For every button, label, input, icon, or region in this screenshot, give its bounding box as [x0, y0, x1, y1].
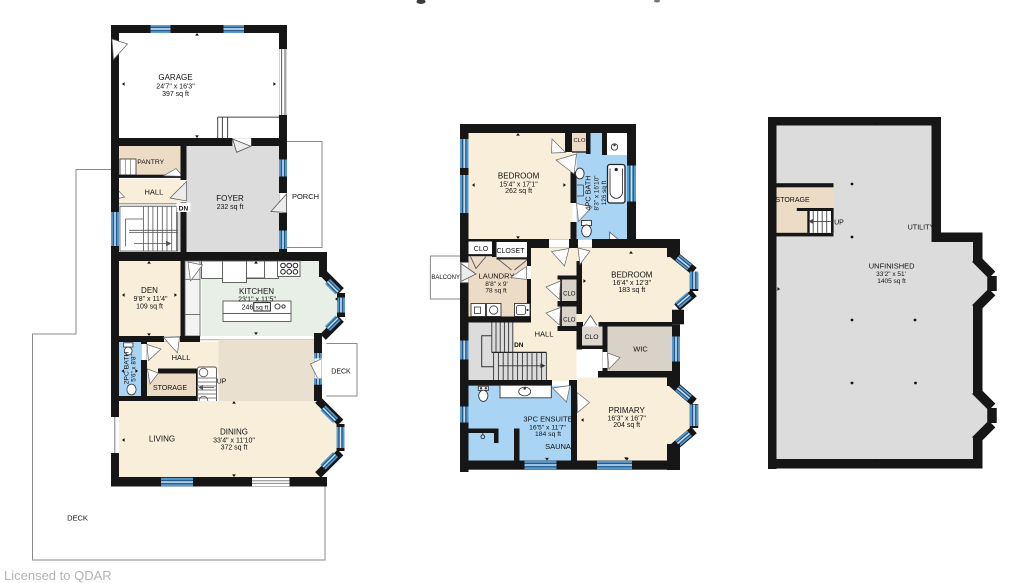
svg-text:DN: DN: [514, 342, 524, 349]
svg-text:LAUNDRY: LAUNDRY: [479, 271, 515, 280]
svg-text:CLOSET: CLOSET: [496, 248, 525, 255]
svg-text:DEN: DEN: [141, 286, 158, 295]
svg-text:UP: UP: [217, 379, 227, 386]
svg-text:GARAGE: GARAGE: [158, 73, 192, 82]
svg-text:262 sq ft: 262 sq ft: [505, 188, 532, 195]
svg-text:8'3" x 16'10": 8'3" x 16'10": [594, 175, 601, 210]
svg-text:CLO: CLO: [474, 246, 489, 253]
svg-text:DECK: DECK: [67, 514, 88, 523]
svg-text:BEDROOM: BEDROOM: [498, 171, 540, 180]
svg-text:CLO: CLO: [563, 291, 576, 297]
svg-text:PRIMARY: PRIMARY: [609, 406, 646, 415]
svg-text:BALCONY: BALCONY: [431, 275, 460, 281]
svg-text:16'4" x 12'3": 16'4" x 12'3": [613, 280, 652, 287]
svg-text:CLO: CLO: [563, 317, 576, 323]
svg-text:1405 sq ft: 1405 sq ft: [877, 278, 906, 285]
svg-text:BEDROOM: BEDROOM: [611, 271, 653, 280]
svg-text:sq ft: sq ft: [256, 304, 269, 311]
svg-text:246: 246: [242, 305, 254, 312]
svg-text:STORAGE: STORAGE: [776, 197, 810, 204]
svg-text:LIVING: LIVING: [149, 435, 175, 444]
svg-text:183 sq ft: 183 sq ft: [618, 287, 645, 294]
svg-text:SAUNA: SAUNA: [545, 442, 571, 451]
svg-text:UP: UP: [834, 220, 844, 227]
svg-text:KITCHEN: KITCHEN: [239, 287, 274, 296]
svg-text:UNFINISHED: UNFINISHED: [869, 261, 915, 270]
svg-text:78 sq ft: 78 sq ft: [485, 288, 507, 295]
svg-text:24'7" x 16'3": 24'7" x 16'3": [156, 84, 195, 91]
svg-text:109 sq ft: 109 sq ft: [136, 304, 163, 311]
svg-text:UTILITY: UTILITY: [908, 223, 935, 232]
svg-text:232 sq ft: 232 sq ft: [217, 204, 244, 211]
svg-text:33'4" x 11'10": 33'4" x 11'10": [213, 437, 255, 444]
svg-text:CLO: CLO: [574, 138, 586, 144]
svg-text:DECK: DECK: [331, 369, 351, 376]
svg-text:9'8" x 11'4": 9'8" x 11'4": [134, 296, 168, 303]
svg-text:3PC ENSUITE: 3PC ENSUITE: [523, 415, 572, 424]
svg-text:HALL: HALL: [145, 187, 164, 196]
svg-text:397 sq ft: 397 sq ft: [162, 91, 189, 98]
svg-text:DN: DN: [179, 205, 189, 212]
svg-text:HALL: HALL: [172, 353, 191, 362]
svg-text:Licensed to QDAR: Licensed to QDAR: [4, 568, 112, 583]
svg-text:PORCH: PORCH: [292, 192, 319, 201]
svg-text:372 sq ft: 372 sq ft: [221, 445, 248, 452]
svg-text:2PC BATH: 2PC BATH: [124, 352, 131, 385]
svg-text:WIC: WIC: [633, 345, 648, 354]
svg-text:DINING: DINING: [220, 428, 248, 437]
svg-text:204 sq ft: 204 sq ft: [613, 422, 640, 429]
svg-text:184 sq ft: 184 sq ft: [535, 431, 561, 438]
svg-text:4PC BATH: 4PC BATH: [584, 175, 593, 210]
svg-text:PANTRY: PANTRY: [137, 159, 164, 166]
svg-text:126 sq ft: 126 sq ft: [601, 181, 608, 206]
svg-text:FOYER: FOYER: [216, 194, 244, 203]
svg-text:STORAGE: STORAGE: [153, 385, 187, 392]
svg-text:CLO: CLO: [585, 334, 599, 341]
svg-text:5'6" x 8'8": 5'6" x 8'8": [131, 354, 138, 382]
svg-text:HALL: HALL: [535, 330, 554, 339]
svg-text:33'2" x 51': 33'2" x 51': [876, 271, 906, 278]
